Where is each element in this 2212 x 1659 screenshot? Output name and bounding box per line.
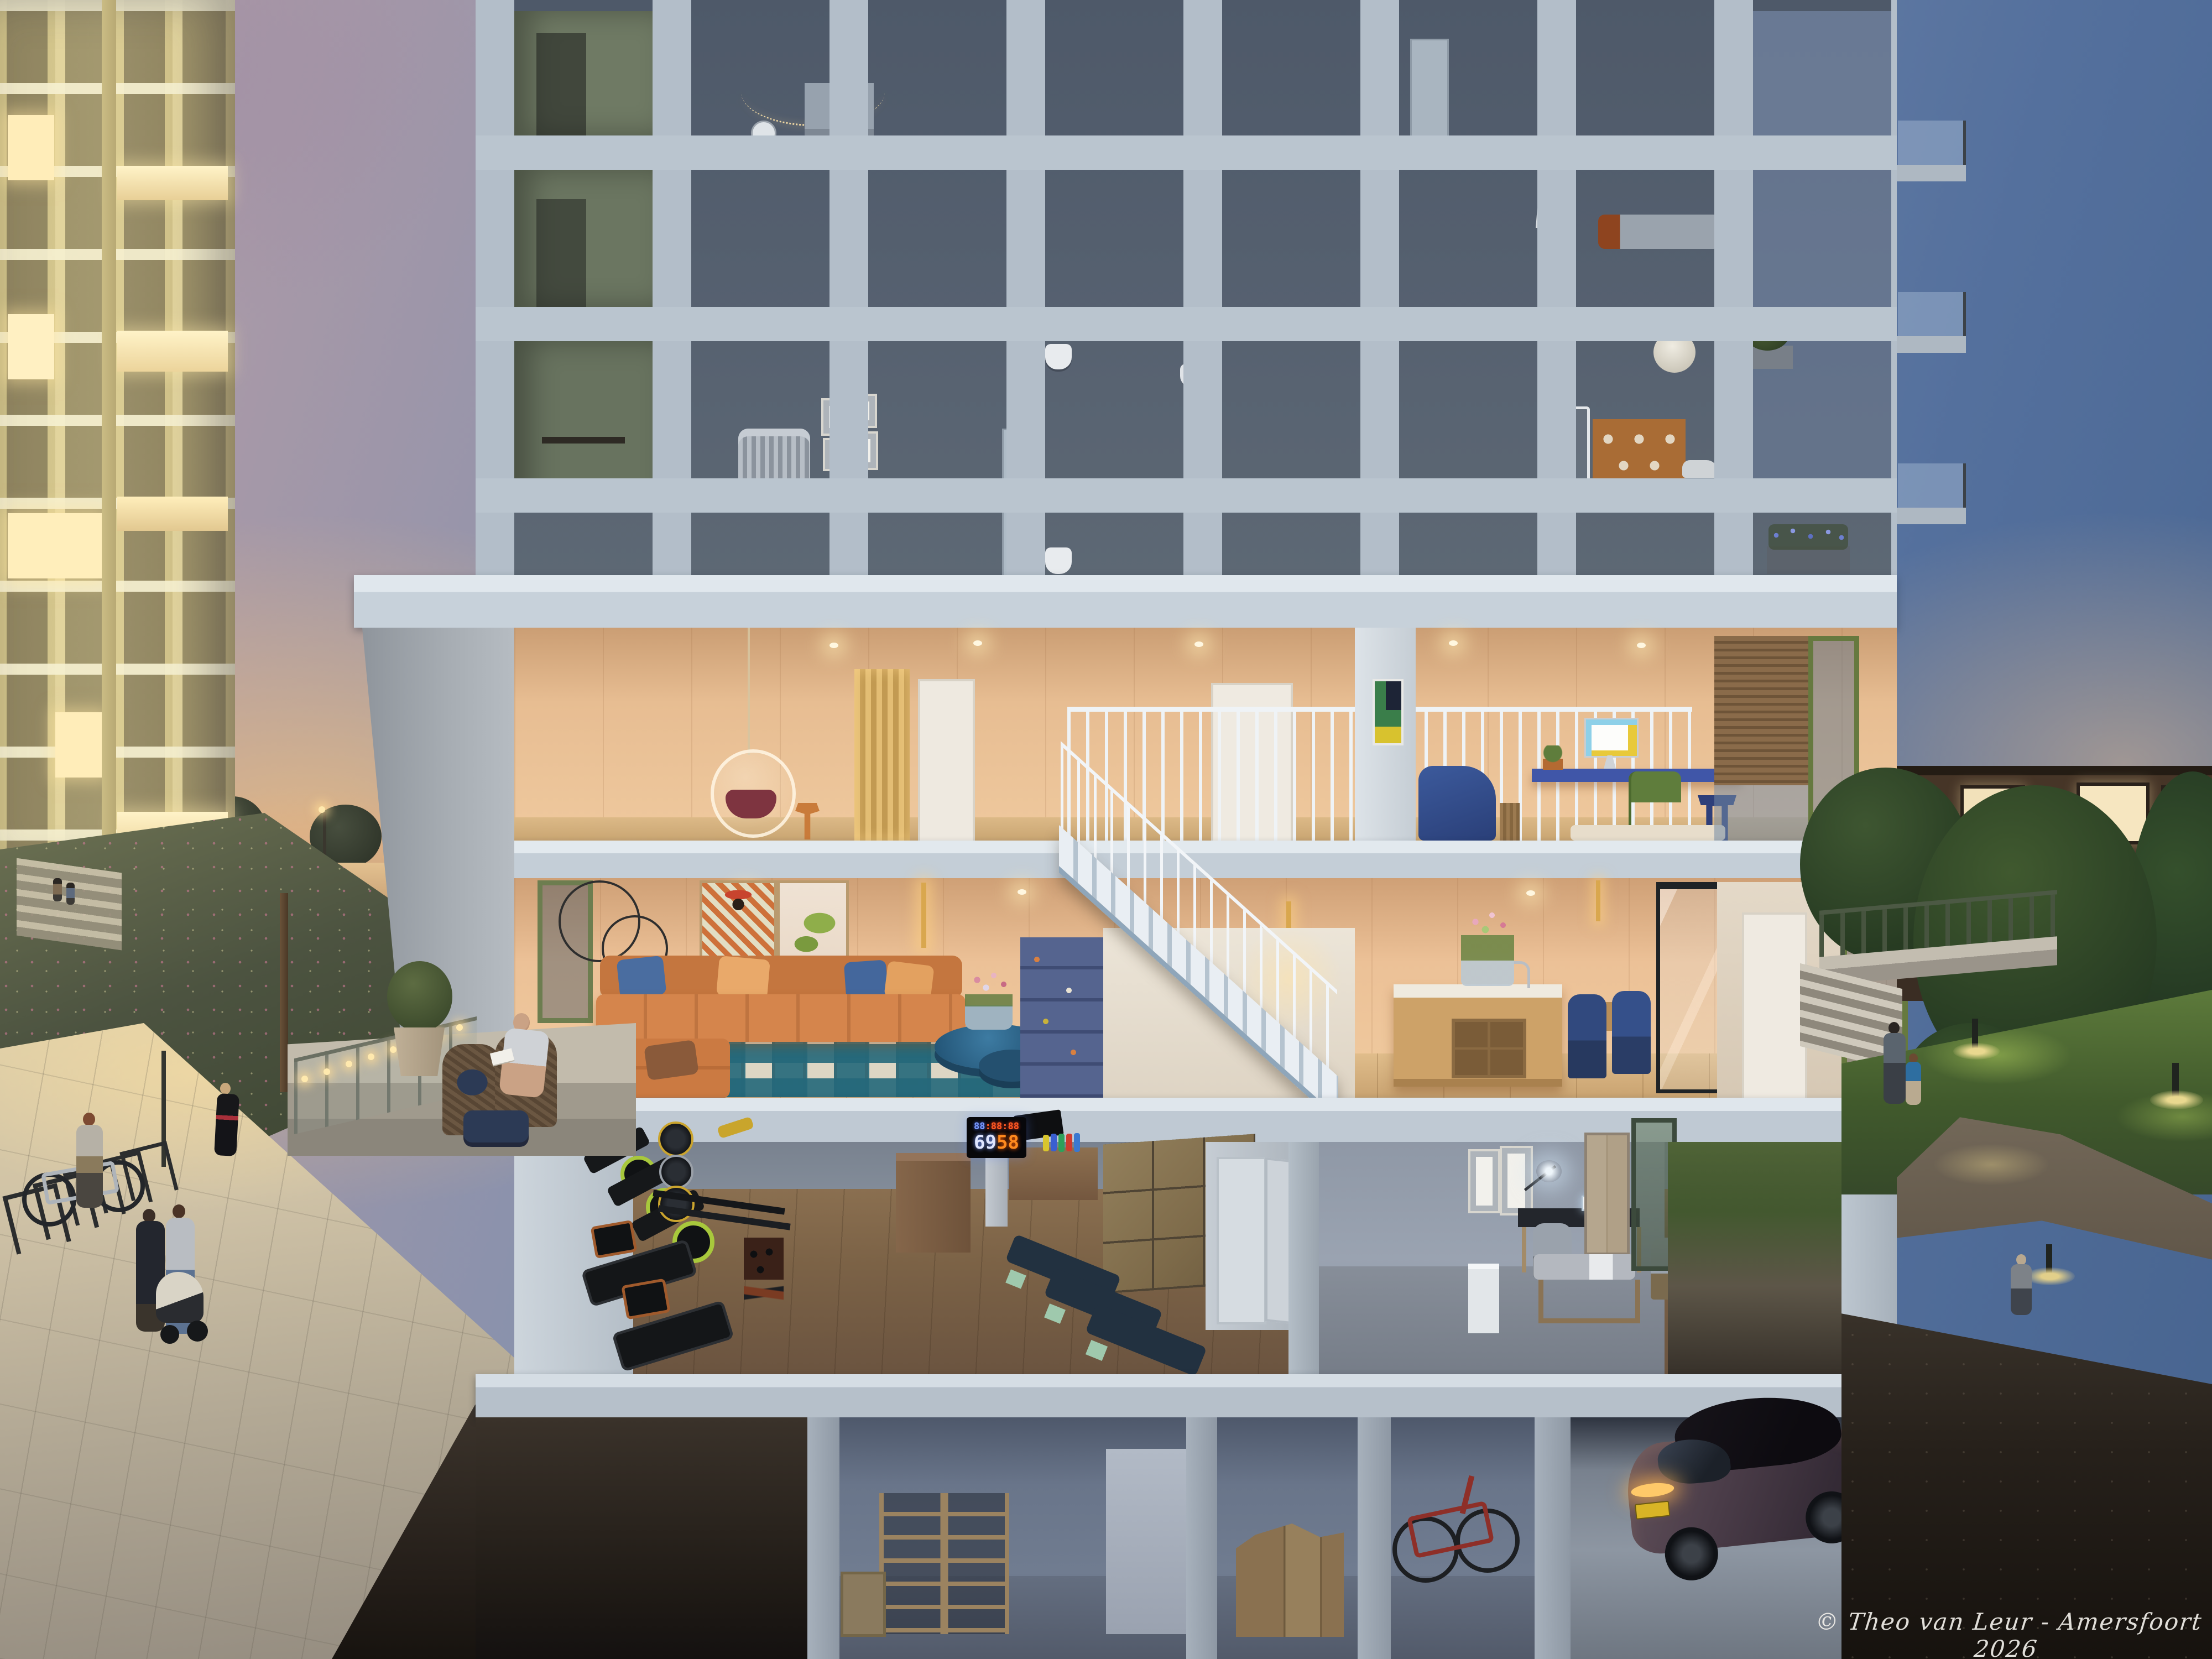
string-light (390, 1046, 397, 1053)
wall-sconce (921, 883, 926, 948)
stroller-wheel (160, 1325, 179, 1344)
watermark: © Theo van Leur - Amersfoort 2026 (1811, 1608, 2204, 1659)
dining-chair-blue (1568, 994, 1606, 1078)
right-balcony-glass (1898, 292, 1966, 336)
garden-person-head (2016, 1254, 2026, 1265)
garden-man (1884, 1033, 1906, 1104)
led-count-row: 6958 (967, 1133, 1026, 1153)
pedestrian-head (83, 1113, 95, 1126)
sofa-pillow-orange (716, 956, 770, 1000)
right-balcony-slab (1897, 336, 1966, 353)
string-light (368, 1053, 374, 1060)
cut-slab-top (354, 575, 1897, 628)
right-balcony-slab (1897, 508, 1966, 524)
right-balcony-slab (1897, 165, 1966, 181)
artwork-abstract (1373, 679, 1404, 745)
water-bottle (1043, 1135, 1049, 1151)
sitting-people (53, 878, 62, 901)
tower-lit-window (8, 513, 102, 578)
storage-cabinet (841, 1572, 886, 1637)
display-stand (985, 1155, 1008, 1227)
botanical-print (1468, 1149, 1500, 1213)
garden-child (1906, 1062, 1921, 1105)
dumbbell-rack (744, 1238, 784, 1348)
gym-partition-pier (1288, 1142, 1319, 1374)
terrace-plant-pot (394, 1027, 445, 1076)
sink-unit (1468, 1264, 1499, 1333)
tower-lit-balcony (117, 331, 228, 372)
grid-slabs (476, 0, 1897, 575)
sofa-pillow-blue (617, 956, 667, 999)
ceiling-spotlight (1526, 890, 1535, 896)
storage-pier (807, 1417, 839, 1659)
led-timer-red: :88:88 (985, 1121, 1019, 1132)
led-count-accent: 58 (997, 1131, 1019, 1154)
jogger-head (220, 1083, 231, 1094)
white-door (1742, 912, 1807, 1104)
garden-man-head (1888, 1022, 1900, 1034)
sofa-pillow-blue (844, 959, 888, 999)
white-door (918, 679, 975, 845)
bubble-chair-chain (748, 628, 750, 755)
tower-core-band (102, 0, 116, 874)
right-balcony-glass (1898, 121, 1966, 165)
string-light (346, 1061, 352, 1067)
tower-lit-window (8, 115, 54, 180)
moving-boxes (1236, 1524, 1344, 1637)
led-count-main: 69 (974, 1131, 997, 1154)
tower-lit-balcony (117, 497, 228, 531)
massage-table (1533, 1254, 1635, 1280)
wall-sconce (1596, 880, 1600, 921)
chaise-pillow-brown (644, 1040, 699, 1081)
basement-soil-left (476, 1417, 807, 1659)
water-bottle (1066, 1134, 1072, 1151)
string-light (456, 1024, 463, 1031)
led-timer-row: 88:88:88 (967, 1121, 1026, 1132)
island-open-shelves (1452, 1019, 1526, 1078)
ceiling-spotlight (1018, 889, 1026, 895)
garden-person (2011, 1264, 2032, 1315)
sofa-seat (596, 994, 966, 1042)
water-bottle (1058, 1134, 1065, 1152)
reading-woman (499, 1027, 550, 1098)
bollard-glow (1953, 1043, 2000, 1060)
ceiling-spotlight (1194, 641, 1203, 647)
tower-lit-balcony (117, 166, 228, 200)
desk-plant (1543, 745, 1563, 770)
terrace-ottoman (463, 1110, 529, 1142)
flower-bouquet (965, 971, 1013, 1030)
stroller-wheel (187, 1321, 208, 1342)
led-display: 88:88:88 6958 (967, 1117, 1026, 1158)
stroller-man-head (173, 1204, 185, 1218)
street-lamp-light (319, 806, 325, 813)
water-bottle (1051, 1134, 1057, 1151)
bollard-glow (2025, 1267, 2075, 1285)
stroller (156, 1272, 204, 1323)
ceiling-spotlight (973, 640, 982, 646)
bookshelf-blue (1020, 937, 1103, 1098)
wood-stump-table (1500, 803, 1520, 841)
window-glass (1714, 785, 1808, 841)
string-light (301, 1076, 308, 1082)
weight-plate (659, 1155, 693, 1189)
storage-corridor (1106, 1449, 1186, 1634)
ceiling-spotlight (1449, 640, 1458, 646)
ceiling-spotlight (830, 643, 838, 648)
scene: 88:88:88 6958 (0, 0, 2212, 1659)
bollard-glow (2150, 1091, 2203, 1109)
massage-table-legs (1538, 1280, 1640, 1323)
gym-exterior-garden (1668, 1142, 1841, 1374)
storage-pier (1186, 1417, 1217, 1659)
weight-plate (658, 1121, 693, 1157)
terrace-bush (387, 961, 452, 1032)
main-building: 88:88:88 6958 (476, 0, 1897, 1659)
golden-nook (854, 669, 910, 841)
wood-pole (280, 893, 288, 1092)
window-blinds (1714, 636, 1808, 785)
led-timer-blue: 88 (974, 1121, 985, 1132)
desk-lamp-glow (1536, 1160, 1562, 1182)
gym-counter (896, 1153, 971, 1253)
navy-armchair (1418, 766, 1496, 841)
right-balcony-glass (1898, 463, 1966, 508)
tall-cabinet (1584, 1133, 1630, 1255)
tower-lit-window (55, 712, 103, 778)
storage-shelves (879, 1493, 1009, 1634)
glass-partition (1656, 882, 1725, 1093)
office-rug (1571, 825, 1725, 841)
tower-lit-window (8, 314, 54, 379)
string-light (324, 1068, 330, 1075)
dining-chair-blue (1612, 991, 1651, 1074)
white-door (1217, 1157, 1266, 1324)
storage-pier (1535, 1417, 1571, 1659)
botanical-print (1500, 1146, 1533, 1215)
ceiling-spotlight (1637, 643, 1646, 648)
water-bottle (1074, 1133, 1080, 1152)
pedestrian-bike-man (76, 1125, 103, 1208)
sitting-people (66, 883, 75, 905)
storage-pier (1358, 1417, 1391, 1659)
kitchen-flowers (1461, 910, 1514, 986)
jogger (214, 1093, 239, 1156)
imac-screen (1584, 718, 1639, 758)
